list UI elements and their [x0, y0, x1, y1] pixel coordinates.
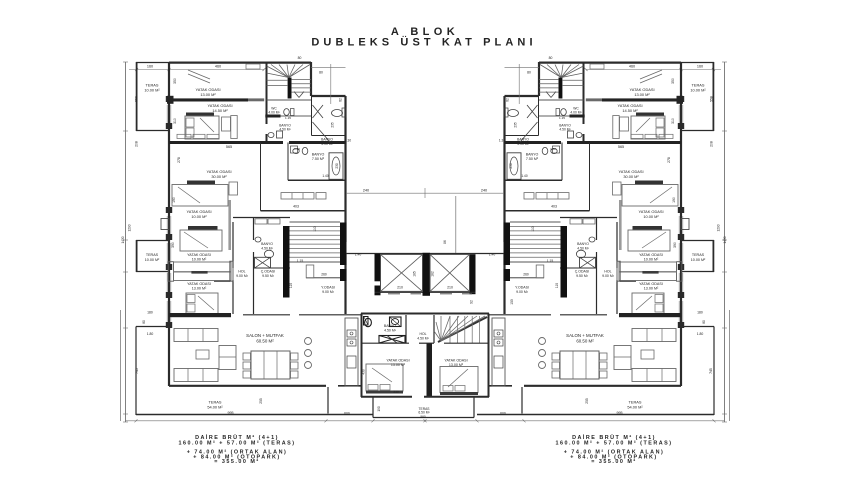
svg-text:YATAK ODASI: YATAK ODASI — [187, 282, 211, 286]
svg-text:210: 210 — [447, 286, 453, 290]
svg-text:10.00 M²: 10.00 M² — [144, 88, 160, 93]
svg-text:1430: 1430 — [121, 236, 125, 243]
svg-text:14.50 M²: 14.50 M² — [622, 108, 638, 113]
svg-text:403: 403 — [293, 205, 299, 209]
svg-text:BANYO: BANYO — [312, 153, 325, 157]
svg-text:230: 230 — [509, 163, 513, 169]
svg-text:1.30: 1.30 — [499, 139, 505, 143]
svg-text:Ç.ODASI: Ç.ODASI — [261, 270, 275, 274]
svg-text:4.00 M²: 4.00 M² — [570, 111, 582, 115]
svg-text:9.00 M²: 9.00 M² — [322, 290, 335, 294]
svg-text:80: 80 — [319, 71, 323, 75]
svg-text:185: 185 — [413, 271, 417, 277]
svg-text:BANYO: BANYO — [526, 153, 539, 157]
svg-text:9.00 M²: 9.00 M² — [602, 274, 615, 278]
svg-text:210: 210 — [397, 286, 403, 290]
svg-text:BANYO: BANYO — [261, 242, 273, 246]
svg-text:1.80: 1.80 — [550, 147, 556, 151]
svg-text:208: 208 — [710, 141, 714, 147]
svg-text:160.00 M² + 57.00 M² (TERAS): 160.00 M² + 57.00 M² (TERAS) — [178, 440, 295, 446]
svg-text:Ç.ODASI: Ç.ODASI — [575, 270, 589, 274]
svg-text:= 355.00 M²: = 355.00 M² — [214, 459, 259, 465]
svg-text:80: 80 — [702, 320, 706, 324]
svg-text:4.50 M²: 4.50 M² — [577, 247, 589, 251]
svg-text:182: 182 — [431, 271, 435, 277]
svg-text:4.50 M²: 4.50 M² — [417, 337, 429, 341]
svg-text:1290: 1290 — [128, 224, 132, 231]
svg-text:278: 278 — [667, 157, 671, 163]
svg-text:80: 80 — [142, 320, 146, 324]
svg-text:1.30: 1.30 — [345, 139, 351, 143]
svg-text:BANYO: BANYO — [577, 242, 589, 246]
svg-text:4.50 M²: 4.50 M² — [279, 128, 291, 132]
svg-text:390: 390 — [673, 242, 677, 248]
svg-text:230: 230 — [335, 163, 339, 169]
svg-text:110: 110 — [531, 226, 535, 231]
svg-text:235: 235 — [514, 122, 518, 128]
svg-text:350: 350 — [671, 78, 675, 84]
svg-text:390: 390 — [171, 242, 175, 248]
svg-text:BANYO: BANYO — [384, 324, 397, 328]
svg-text:Y.ODASI: Y.ODASI — [515, 286, 529, 290]
svg-text:190: 190 — [172, 197, 176, 203]
svg-text:600: 600 — [344, 411, 350, 415]
svg-text:255: 255 — [259, 398, 263, 404]
svg-text:10.00 M²: 10.00 M² — [691, 258, 706, 262]
svg-text:1.15: 1.15 — [547, 259, 554, 263]
svg-text:350: 350 — [173, 78, 177, 84]
svg-text:1.80: 1.80 — [294, 147, 300, 151]
svg-text:9.00 M²: 9.00 M² — [516, 290, 529, 294]
svg-text:BANYO: BANYO — [321, 138, 333, 142]
svg-text:YATAK ODASI: YATAK ODASI — [444, 359, 467, 363]
svg-text:1430: 1430 — [723, 236, 727, 243]
svg-text:30.00 M²: 30.00 M² — [623, 174, 639, 179]
svg-text:86: 86 — [443, 240, 447, 244]
svg-text:SALON + MUTFAK: SALON + MUTFAK — [566, 333, 604, 338]
svg-text:1.15: 1.15 — [297, 259, 304, 263]
svg-text:13.00 M²: 13.00 M² — [449, 363, 464, 367]
svg-text:1.80: 1.80 — [697, 332, 704, 336]
svg-text:310: 310 — [671, 118, 675, 124]
svg-text:160: 160 — [697, 64, 703, 68]
svg-text:BANYO: BANYO — [517, 138, 529, 142]
svg-text:HOL: HOL — [238, 270, 245, 274]
svg-text:110: 110 — [555, 283, 559, 288]
svg-text:13.00 M²: 13.00 M² — [200, 92, 216, 97]
svg-text:60.50 M²: 60.50 M² — [256, 339, 274, 344]
svg-text:558: 558 — [135, 96, 139, 102]
svg-text:110: 110 — [289, 283, 293, 288]
svg-text:13.00 M²: 13.00 M² — [391, 363, 406, 367]
svg-text:1.15: 1.15 — [285, 116, 291, 120]
svg-text:92: 92 — [470, 300, 474, 304]
svg-text:10.00 M²: 10.00 M² — [145, 258, 160, 262]
svg-text:YATAK ODASI: YATAK ODASI — [639, 282, 663, 286]
svg-text:160.00 M² + 57.00 M² (TERAS): 160.00 M² + 57.00 M² (TERAS) — [555, 440, 672, 446]
svg-text:4.50 M²: 4.50 M² — [559, 128, 571, 132]
svg-text:7.50 M²: 7.50 M² — [312, 157, 325, 161]
svg-text:13.00 M²: 13.00 M² — [634, 92, 650, 97]
svg-text:82: 82 — [339, 98, 343, 102]
svg-text:995: 995 — [617, 411, 623, 415]
svg-text:SALON + MUTFAK: SALON + MUTFAK — [246, 333, 284, 338]
svg-text:= 355.00 M²: = 355.00 M² — [591, 459, 636, 465]
svg-text:4.50 M²: 4.50 M² — [261, 247, 273, 251]
svg-text:1290: 1290 — [717, 224, 721, 231]
svg-text:54.00 M²: 54.00 M² — [627, 405, 643, 410]
svg-text:460: 460 — [215, 64, 221, 68]
svg-text:110: 110 — [313, 226, 317, 231]
svg-text:565: 565 — [618, 145, 624, 149]
svg-text:240: 240 — [481, 189, 487, 193]
svg-text:980: 980 — [420, 415, 425, 419]
svg-text:190: 190 — [377, 406, 381, 412]
svg-text:10.00 M²: 10.00 M² — [644, 258, 659, 262]
svg-text:1.15: 1.15 — [559, 116, 565, 120]
svg-text:1.80: 1.80 — [147, 332, 154, 336]
svg-text:7.50 M²: 7.50 M² — [526, 157, 539, 161]
svg-text:82: 82 — [506, 98, 510, 102]
svg-text:YATAK ODASI: YATAK ODASI — [639, 253, 663, 257]
svg-text:1.40: 1.40 — [322, 174, 328, 178]
svg-text:403: 403 — [551, 205, 557, 209]
svg-text:190: 190 — [672, 197, 676, 203]
svg-text:330: 330 — [393, 390, 399, 394]
svg-text:260: 260 — [321, 273, 327, 277]
svg-text:5.00 M²: 5.00 M² — [517, 142, 529, 146]
svg-text:TERAS: TERAS — [692, 253, 705, 257]
svg-text:YATAK ODASI: YATAK ODASI — [187, 253, 211, 257]
svg-text:9.50 M²: 9.50 M² — [262, 274, 275, 278]
svg-text:14.50 M²: 14.50 M² — [212, 108, 228, 113]
svg-text:80: 80 — [549, 56, 553, 60]
svg-text:255: 255 — [585, 398, 589, 404]
svg-text:TERAS: TERAS — [146, 253, 159, 257]
svg-text:558: 558 — [710, 96, 714, 102]
svg-text:13.00 M²: 13.00 M² — [644, 287, 659, 291]
svg-text:5.00 M²: 5.00 M² — [321, 142, 333, 146]
svg-text:YATAK ODASI: YATAK ODASI — [386, 359, 409, 363]
svg-text:HOL: HOL — [604, 270, 611, 274]
svg-text:DUBLEKS ÜST KAT PLANI: DUBLEKS ÜST KAT PLANI — [311, 36, 536, 49]
svg-text:10.00 M²: 10.00 M² — [643, 214, 659, 219]
svg-text:208: 208 — [135, 141, 139, 147]
svg-text:4.50 M²: 4.50 M² — [384, 329, 397, 333]
svg-text:10.00 M²: 10.00 M² — [192, 258, 207, 262]
svg-text:9.00 M²: 9.00 M² — [236, 274, 249, 278]
svg-text:745: 745 — [709, 368, 713, 374]
svg-text:600: 600 — [500, 411, 506, 415]
svg-text:278: 278 — [177, 157, 181, 163]
svg-text:13.00 M²: 13.00 M² — [192, 287, 207, 291]
svg-text:30.00 M²: 30.00 M² — [211, 174, 227, 179]
svg-text:150: 150 — [510, 299, 514, 305]
svg-text:9.50 M²: 9.50 M² — [576, 274, 589, 278]
svg-text:80: 80 — [298, 56, 302, 60]
svg-text:460: 460 — [629, 64, 635, 68]
svg-text:310: 310 — [173, 118, 177, 124]
svg-text:235: 235 — [331, 122, 335, 128]
svg-text:10.00 M²: 10.00 M² — [690, 88, 706, 93]
svg-text:430: 430 — [362, 369, 366, 375]
svg-text:745: 745 — [135, 368, 139, 374]
svg-text:60.50 M²: 60.50 M² — [576, 339, 594, 344]
svg-text:160: 160 — [147, 64, 153, 68]
svg-text:HOL: HOL — [420, 332, 427, 336]
svg-text:240: 240 — [363, 189, 369, 193]
svg-text:10.00 M²: 10.00 M² — [191, 214, 207, 219]
svg-text:Y.ODASI: Y.ODASI — [321, 286, 335, 290]
svg-text:995: 995 — [228, 411, 234, 415]
svg-text:180: 180 — [147, 311, 153, 315]
svg-text:4.00 M²: 4.00 M² — [268, 111, 280, 115]
svg-text:180: 180 — [697, 311, 703, 315]
svg-text:80: 80 — [527, 71, 531, 75]
svg-text:565: 565 — [226, 145, 232, 149]
svg-text:260: 260 — [523, 273, 529, 277]
svg-text:54.00 M²: 54.00 M² — [207, 405, 223, 410]
svg-text:1.40: 1.40 — [521, 174, 527, 178]
